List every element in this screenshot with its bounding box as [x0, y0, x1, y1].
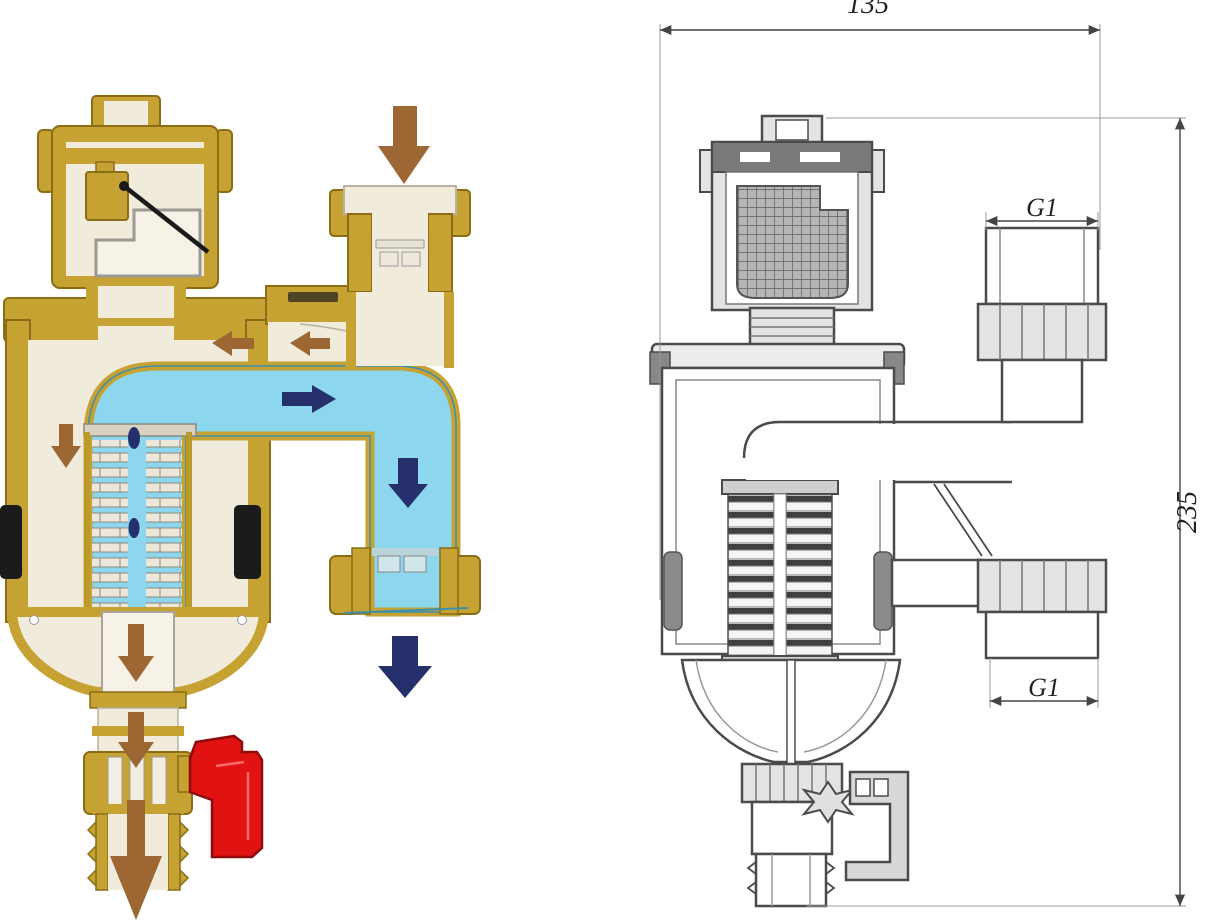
td-cartridge-cap — [722, 480, 838, 494]
td-bottom-port-stub — [986, 612, 1098, 658]
bubble-droplet-mid — [129, 518, 140, 538]
td-strut — [934, 484, 992, 556]
td-air-vent — [700, 116, 884, 346]
inlet-top-face — [344, 186, 456, 214]
td-fin-stack-right — [786, 494, 832, 658]
inlet-mechanism-bar — [376, 240, 424, 248]
td-fin-stack-left — [728, 494, 774, 658]
td-bracket-slot-2 — [874, 779, 888, 796]
td-top-port-adapter — [1002, 360, 1082, 422]
funnel-hole-right — [238, 616, 247, 625]
neck-ridge — [92, 318, 184, 326]
dim-label-g1-top: G1 — [1026, 193, 1058, 222]
cartridge-rail-right — [186, 432, 192, 614]
outlet-nut-left — [352, 548, 370, 614]
td-vent-slot-1 — [740, 152, 770, 162]
magnet-left — [0, 505, 22, 579]
valve-block — [86, 172, 128, 220]
inlet-mechanism-a — [380, 252, 398, 266]
inlet-nut-right — [428, 214, 452, 292]
neck-interior — [98, 286, 174, 342]
td-bottom-port — [892, 560, 1106, 658]
td-flange — [652, 344, 904, 368]
td-top-port-nut — [978, 304, 1106, 360]
hose-wall-left — [88, 814, 108, 890]
inlet-nut-left — [348, 214, 372, 292]
td-cartridge-slot — [774, 494, 786, 658]
td-funnel-drain — [682, 660, 908, 906]
drain-collar — [90, 692, 186, 708]
fin-stack-right — [146, 440, 182, 610]
magnet-right — [234, 505, 261, 579]
inlet-flow-arrow — [378, 106, 430, 184]
td-bottom-port-nut — [978, 560, 1106, 612]
outlet-mechanism-a — [378, 556, 400, 572]
inlet-union — [330, 186, 470, 368]
colored-cutaway-diagram — [0, 96, 480, 920]
funnel-hole-left — [30, 616, 39, 625]
connector-flange — [266, 286, 354, 324]
tee-wall-right — [444, 292, 454, 368]
fin-stack-left — [92, 440, 128, 610]
air-vent-cap-inner — [104, 101, 148, 127]
outlet-mechanism-bar — [372, 548, 438, 556]
td-body — [650, 344, 904, 666]
hose-wall-right — [168, 814, 188, 890]
td-cap-inner — [776, 120, 808, 140]
td-vent-top-band — [712, 142, 872, 172]
dim-label-height: 235 — [1172, 491, 1203, 533]
technical-drawing: 135 235 G1 G1 — [650, 0, 1203, 906]
tee-wall-left — [346, 292, 356, 368]
td-vent-slot-2 — [800, 152, 840, 162]
td-hose-barb — [756, 854, 826, 906]
air-vent-assembly — [38, 96, 232, 288]
dim-label-g1-bottom: G1 — [1028, 673, 1060, 702]
neck-wall-right — [174, 286, 186, 336]
tee-interior — [356, 292, 444, 366]
td-top-port-stub — [986, 228, 1098, 304]
air-vent-top-bar — [66, 148, 204, 164]
drain-handle-red — [190, 736, 262, 857]
drain-stack — [84, 692, 262, 890]
td-magnet-left — [664, 552, 682, 630]
separator-diagram-svg: 135 235 G1 G1 — [0, 0, 1214, 922]
cartridge-cap — [84, 424, 196, 436]
cartridge-rail-left — [84, 432, 90, 614]
valve-stripe-3 — [152, 757, 166, 809]
dim-label-width: 135 — [847, 0, 889, 20]
inlet-mechanism-b — [402, 252, 420, 266]
outlet-flow-arrow — [378, 636, 432, 698]
neck-wall-left — [86, 286, 98, 336]
engraving-mark — [288, 292, 338, 302]
figure-canvas: 135 235 G1 G1 — [0, 0, 1214, 922]
td-top-port — [978, 228, 1106, 422]
td-bottom-connector — [892, 560, 980, 606]
bubble-droplet-top — [128, 427, 140, 449]
td-bracket-slot-1 — [856, 779, 870, 796]
td-pipe-fill — [746, 424, 1012, 480]
td-stem — [787, 660, 795, 764]
outlet-nut-right — [440, 548, 458, 614]
td-magnet-right — [874, 552, 892, 630]
outlet-mechanism-b — [404, 556, 426, 572]
valve-stripe-1 — [108, 757, 122, 809]
